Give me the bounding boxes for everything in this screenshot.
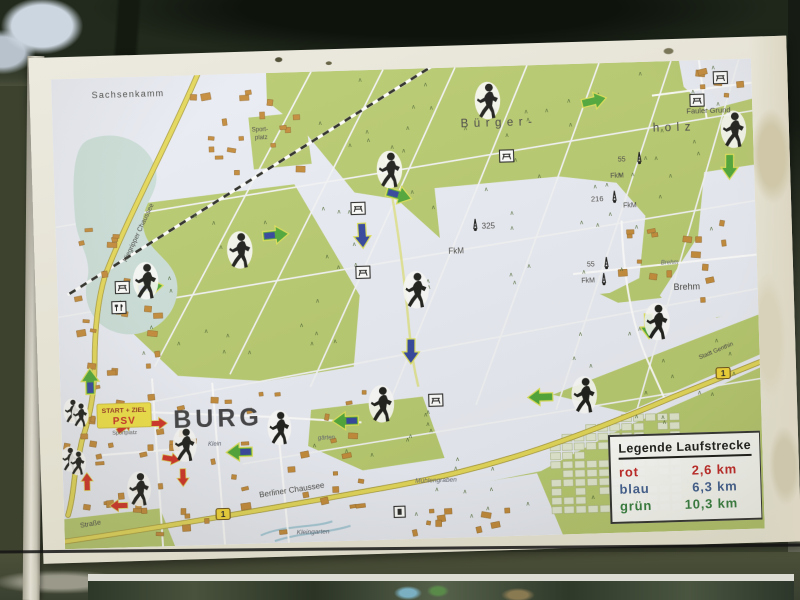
building <box>358 479 364 484</box>
label-elev-55b: 55 <box>587 261 595 268</box>
building <box>626 230 634 235</box>
allotment-plot <box>552 488 562 495</box>
building <box>215 156 223 160</box>
label-burg: BURG <box>173 403 263 434</box>
tree-symbol: ʌ <box>402 148 405 154</box>
tree-symbol: ʌ <box>415 512 418 518</box>
tree-symbol: ʌ <box>510 211 513 217</box>
allotment-plot <box>598 433 608 440</box>
building <box>90 329 96 333</box>
building <box>146 364 151 369</box>
tree-symbol: ʌ <box>300 323 303 329</box>
tree-symbol: ʌ <box>429 428 432 434</box>
allotment-plot <box>575 488 585 495</box>
tree-symbol: ʌ <box>639 71 642 77</box>
label-fkm-4: FkM <box>581 277 595 284</box>
building <box>239 136 244 140</box>
tree-symbol: ʌ <box>223 350 226 356</box>
building <box>95 461 104 465</box>
tree-symbol: ʌ <box>505 133 508 139</box>
tree-symbol: ʌ <box>212 221 215 227</box>
tree-symbol: ʌ <box>711 392 714 398</box>
route-number: 1 <box>721 368 726 378</box>
tree-symbol: ʌ <box>371 453 374 459</box>
tree-symbol: ʌ <box>527 264 530 270</box>
tree-symbol: ʌ <box>669 174 672 180</box>
tree-symbol: ʌ <box>316 299 319 305</box>
tree-symbol: ʌ <box>463 490 466 496</box>
building <box>426 521 431 525</box>
building <box>362 390 366 394</box>
tree-symbol: ʌ <box>509 273 512 279</box>
tree-symbol: ʌ <box>168 276 171 282</box>
tree-symbol: ʌ <box>510 226 513 232</box>
tree-symbol: ʌ <box>264 220 267 226</box>
allotment-plot <box>562 443 572 450</box>
tree-symbol: ʌ <box>485 187 488 193</box>
building <box>89 441 96 448</box>
allotment-plot <box>587 478 597 485</box>
photo-scene: ʌʌʌʌʌʌʌʌʌʌʌʌʌʌʌʌʌʌʌʌʌʌʌʌʌʌʌʌʌʌʌʌʌʌʌʌʌʌʌʌ… <box>0 0 800 600</box>
tree-symbol: ʌ <box>663 420 666 426</box>
building <box>333 486 339 492</box>
tree-symbol: ʌ <box>310 341 313 347</box>
allotment-plot <box>564 506 574 513</box>
building <box>141 508 147 514</box>
map-board: ʌʌʌʌʌʌʌʌʌʌʌʌʌʌʌʌʌʌʌʌʌʌʌʌʌʌʌʌʌʌʌʌʌʌʌʌʌʌʌʌ… <box>28 36 800 564</box>
map: ʌʌʌʌʌʌʌʌʌʌʌʌʌʌʌʌʌʌʌʌʌʌʌʌʌʌʌʌʌʌʌʌʌʌʌʌʌʌʌʌ… <box>51 59 765 550</box>
route-number: 1 <box>221 509 226 519</box>
tree-symbol: ʌ <box>693 140 696 146</box>
lower-photo-panel <box>88 574 794 600</box>
building <box>107 370 116 375</box>
tree-symbol: ʌ <box>424 82 427 88</box>
allotment-plot <box>576 497 586 504</box>
building <box>231 474 236 479</box>
allotment-plot <box>552 497 562 504</box>
building <box>158 483 163 489</box>
tree-symbol: ʌ <box>248 350 251 356</box>
building <box>81 434 88 439</box>
picnic-table-icon <box>690 94 704 106</box>
tree-symbol: ʌ <box>513 280 516 286</box>
tree-symbol: ʌ <box>391 145 394 151</box>
building <box>241 442 249 446</box>
allotment-plot <box>575 479 585 486</box>
allotment-plot <box>645 414 655 421</box>
tree-symbol: ʌ <box>662 358 665 364</box>
picnic-table-icon <box>429 394 443 406</box>
label-fkm-3: FkM <box>610 172 624 179</box>
tree-symbol: ʌ <box>142 351 145 357</box>
tree-symbol: ʌ <box>698 390 701 396</box>
label-muehlengraben: Mühlengraben <box>415 477 457 485</box>
tree-symbol: ʌ <box>367 138 370 144</box>
building <box>118 493 124 500</box>
picnic-table-icon <box>356 266 370 278</box>
building <box>181 508 186 514</box>
building <box>293 115 300 120</box>
building <box>245 90 252 95</box>
building <box>333 472 338 476</box>
sportplatz-start-label: Sportplatz <box>112 430 137 437</box>
legend-box: Legende Laufstrecke rot2,6 kmblau6,3 kmg… <box>608 431 763 524</box>
allotment-plot <box>550 453 560 460</box>
building <box>148 445 154 451</box>
allotment-plot <box>586 442 596 449</box>
allotment-plot <box>599 478 609 485</box>
building <box>444 508 452 514</box>
label-buergerholz-1: Bürger- <box>460 116 537 130</box>
building <box>204 518 209 523</box>
tree-symbol: ʌ <box>337 265 340 271</box>
building <box>275 392 281 396</box>
tree-symbol: ʌ <box>432 205 435 211</box>
tree-symbol: ʌ <box>655 156 658 162</box>
info-icon <box>394 506 405 517</box>
building <box>211 459 216 465</box>
building <box>259 112 264 119</box>
building <box>651 232 658 237</box>
label-sportplatz-2: platz <box>255 135 268 141</box>
building <box>144 306 151 312</box>
building <box>91 416 96 422</box>
tree-symbol: ʌ <box>567 99 570 105</box>
tree-symbol: ʌ <box>427 410 430 416</box>
tree-symbol: ʌ <box>635 414 638 420</box>
tree-symbol: ʌ <box>411 190 414 196</box>
building <box>296 166 305 172</box>
building <box>691 251 701 257</box>
tree-symbol: ʌ <box>454 466 457 472</box>
tree-symbol: ʌ <box>194 214 197 220</box>
label-gaerten: gärten <box>318 435 336 442</box>
tree-symbol: ʌ <box>358 78 361 84</box>
building <box>259 392 264 396</box>
picnic-table-icon <box>713 71 727 83</box>
allotment-plot <box>576 506 586 513</box>
tree-symbol: ʌ <box>592 495 595 501</box>
building <box>156 429 164 435</box>
allotment-plot <box>563 470 573 477</box>
building <box>153 313 162 319</box>
tree-symbol: ʌ <box>412 105 415 111</box>
building <box>696 237 702 243</box>
start-ziel-label: START + ZIEL <box>102 407 147 415</box>
tree-symbol: ʌ <box>569 123 572 129</box>
building <box>429 509 434 513</box>
psv-label: PSV <box>113 416 136 428</box>
building <box>700 297 705 302</box>
label-brehm-road: Brehm <box>661 260 679 267</box>
tree-symbol: ʌ <box>538 174 541 180</box>
building <box>156 532 164 536</box>
allotment-plot <box>622 423 632 430</box>
building <box>348 433 358 439</box>
building <box>148 394 155 401</box>
building <box>85 228 93 232</box>
allotment-plot <box>669 413 679 420</box>
tree-symbol: ʌ <box>219 245 222 251</box>
tree-symbol: ʌ <box>334 339 337 345</box>
building <box>271 143 276 147</box>
tree-symbol: ʌ <box>620 267 623 273</box>
tree-symbol: ʌ <box>582 270 585 276</box>
allotment-plot <box>575 470 585 477</box>
building <box>87 363 96 370</box>
legend-rows: rot2,6 kmblau6,3 kmgrün10,3 km <box>619 460 753 515</box>
building <box>721 240 726 247</box>
tree-symbol: ʌ <box>315 331 318 337</box>
building <box>208 136 214 140</box>
tree-symbol: ʌ <box>177 341 180 347</box>
building <box>182 525 191 532</box>
tree-symbol: ʌ <box>671 374 674 380</box>
building <box>324 414 329 421</box>
tree-symbol: ʌ <box>326 254 329 260</box>
tree-symbol: ʌ <box>729 351 732 357</box>
tree-symbol: ʌ <box>322 206 325 212</box>
tree-symbol: ʌ <box>628 331 631 337</box>
picnic-table-icon <box>115 281 129 293</box>
building <box>667 271 672 278</box>
building <box>320 497 329 505</box>
allotment-plot <box>670 422 680 429</box>
tree-symbol: ʌ <box>596 223 599 229</box>
building <box>719 220 724 226</box>
label-fkm-2: FkM <box>623 202 637 209</box>
allotment-plot <box>599 487 609 494</box>
building <box>239 95 249 101</box>
tree-symbol: ʌ <box>635 224 638 230</box>
allotment-plot <box>562 452 572 459</box>
tree-symbol: ʌ <box>430 106 433 112</box>
allotment-plot <box>574 443 584 450</box>
tree-symbol: ʌ <box>659 195 662 201</box>
allotment-plot <box>563 461 573 468</box>
restaurant-icon <box>112 301 126 313</box>
tree-symbol: ʌ <box>525 110 528 116</box>
tree-symbol: ʌ <box>594 184 597 190</box>
building <box>108 443 113 448</box>
building <box>96 454 102 460</box>
tree-symbol: ʌ <box>313 443 316 449</box>
building <box>267 99 273 106</box>
allotment-plot <box>563 479 573 486</box>
picnic-table-icon <box>499 150 513 162</box>
route-1-shield: 1 <box>216 508 230 519</box>
building <box>288 466 296 472</box>
building <box>280 125 287 130</box>
allotment-plot <box>599 469 609 476</box>
building <box>211 397 219 403</box>
tree-symbol: ʌ <box>545 108 548 114</box>
label-elev-216: 216 <box>591 194 604 203</box>
allotment-plot <box>598 442 608 449</box>
tree-symbol: ʌ <box>732 371 735 377</box>
tree-symbol: ʌ <box>490 487 493 493</box>
tree-symbol: ʌ <box>205 329 208 335</box>
tree-symbol: ʌ <box>169 288 172 294</box>
label-fkm-1: FkM <box>448 246 464 255</box>
tree-symbol: ʌ <box>579 332 582 338</box>
building <box>436 520 442 526</box>
tree-symbol: ʌ <box>406 126 409 132</box>
building <box>241 502 252 510</box>
building <box>505 508 510 513</box>
allotment-plot <box>551 479 561 486</box>
building <box>724 93 729 97</box>
allotment-plot <box>634 423 644 430</box>
tree-symbol: ʌ <box>644 156 647 162</box>
building <box>190 94 197 100</box>
tree-symbol: ʌ <box>486 506 489 512</box>
label-elev-55a: 55 <box>618 156 626 163</box>
tree-symbol: ʌ <box>715 338 718 344</box>
tree-symbol: ʌ <box>609 212 612 218</box>
building <box>683 236 692 243</box>
tree-symbol: ʌ <box>435 487 438 493</box>
building <box>736 81 744 88</box>
building <box>356 503 366 508</box>
label-brehm: Brehm <box>673 281 700 292</box>
tree-symbol: ʌ <box>580 220 583 226</box>
building <box>79 241 85 246</box>
allotment-plot <box>599 460 609 467</box>
tree-symbol: ʌ <box>605 182 608 188</box>
tree-symbol: ʌ <box>661 415 664 421</box>
label-sportplatz-1: Sport- <box>252 127 269 133</box>
building <box>476 526 482 533</box>
tree-symbol: ʌ <box>456 457 459 463</box>
building <box>222 119 227 126</box>
allotment-plot <box>587 469 597 476</box>
label-buergerholz-2: holz <box>653 121 696 134</box>
tree-symbol: ʌ <box>319 121 322 127</box>
tree-symbol: ʌ <box>526 501 529 507</box>
building <box>234 170 239 175</box>
allotment-plot <box>600 505 610 512</box>
label-fauler-grund: Fauler Grund <box>686 105 730 115</box>
tree-symbol: ʌ <box>644 391 647 397</box>
tree-symbol: ʌ <box>366 130 369 136</box>
tree-symbol: ʌ <box>573 356 576 362</box>
building <box>209 147 214 152</box>
allotment-plot <box>574 452 584 459</box>
building <box>154 351 160 357</box>
tree-symbol: ʌ <box>348 210 351 216</box>
allotment-plot <box>587 460 597 467</box>
building <box>107 242 117 248</box>
allotment-plot <box>551 462 561 469</box>
allotment-plot <box>552 506 562 513</box>
allotment-plot <box>575 461 585 468</box>
label-elev-325: 325 <box>482 221 496 230</box>
building <box>225 400 232 404</box>
route-1-shield: 1 <box>716 367 730 378</box>
tree-symbol: ʌ <box>150 325 153 331</box>
building <box>83 319 90 323</box>
tree-symbol: ʌ <box>697 151 700 157</box>
building <box>637 260 641 264</box>
building <box>700 85 705 90</box>
tree-symbol: ʌ <box>353 242 356 248</box>
building <box>133 508 141 512</box>
tree-symbol: ʌ <box>409 434 412 440</box>
label-klein: Klein <box>208 442 222 448</box>
legend-route-grün: grün10,3 km <box>620 494 753 515</box>
tree-symbol: ʌ <box>491 467 494 473</box>
tree-symbol: ʌ <box>348 143 351 149</box>
tree-symbol: ʌ <box>589 363 592 369</box>
label-kleingarten: Kleingarten <box>297 528 330 536</box>
tree-symbol: ʌ <box>470 514 473 520</box>
building <box>627 234 632 238</box>
building <box>76 329 86 337</box>
tree-symbol: ʌ <box>631 172 634 178</box>
tree-symbol: ʌ <box>710 226 713 232</box>
building <box>649 273 657 280</box>
tree-symbol: ʌ <box>345 449 348 455</box>
allotment-plot <box>588 505 598 512</box>
allotment-plot <box>564 497 574 504</box>
building <box>83 504 90 510</box>
picnic-table-icon <box>351 202 365 214</box>
building <box>113 234 119 238</box>
tree-symbol: ʌ <box>337 209 340 215</box>
building <box>702 264 708 271</box>
tree-symbol: ʌ <box>712 65 715 71</box>
tree-symbol: ʌ <box>514 158 517 164</box>
tree-symbol: ʌ <box>426 422 429 428</box>
tree-symbol: ʌ <box>226 333 229 339</box>
legend-title: Legende Laufstrecke <box>618 438 751 460</box>
building <box>101 271 108 278</box>
building <box>279 530 287 535</box>
